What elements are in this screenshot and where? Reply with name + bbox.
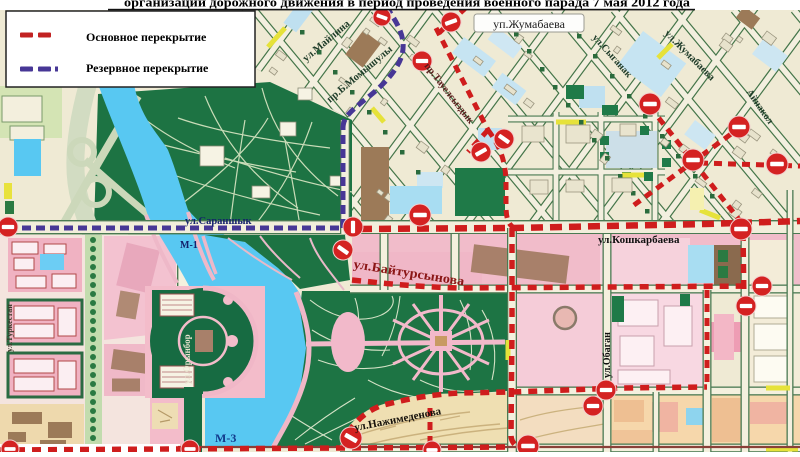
svg-text:ул.Туркестан: ул.Туркестан — [5, 304, 14, 352]
svg-text:ул.Сараншык: ул.Сараншык — [185, 216, 253, 227]
svg-text:М-3: М-3 — [215, 431, 236, 445]
svg-text:ул.Орынбор: ул.Орынбор — [182, 334, 192, 384]
svg-text:организации дорожного движения: организации дорожного движения в период … — [124, 0, 691, 10]
svg-text:М-1: М-1 — [180, 240, 198, 251]
svg-text:ул.Обаган: ул.Обаган — [602, 332, 613, 378]
svg-text:уп.Жумабаева: уп.Жумабаева — [493, 17, 566, 31]
svg-text:Основное перекрытие: Основное перекрытие — [86, 30, 207, 44]
svg-text:ул.Кошкарбаева: ул.Кошкарбаева — [598, 234, 680, 246]
svg-text:Резервное перекрытие: Резервное перекрытие — [86, 61, 209, 75]
